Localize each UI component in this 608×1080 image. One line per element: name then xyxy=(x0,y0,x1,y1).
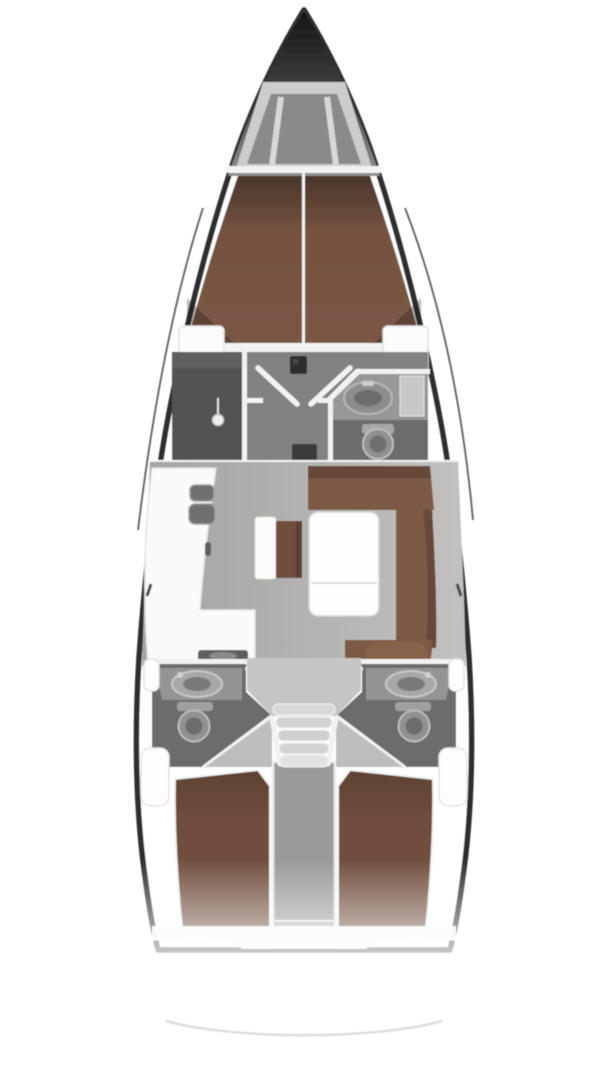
side-locker-starboard xyxy=(439,748,467,806)
yacht-floor-plan-page xyxy=(0,0,608,1080)
sink-icon xyxy=(172,671,222,697)
counter-handle xyxy=(205,542,211,556)
aft-head-stbd-topwall xyxy=(360,659,458,664)
side-locker-port-small xyxy=(144,659,159,691)
deck-centerline xyxy=(302,168,305,345)
yacht-interior-floor-plan xyxy=(0,0,608,1080)
center-bench-white xyxy=(255,517,276,579)
galley-sink-icon xyxy=(189,485,215,524)
side-locker-stbd-small xyxy=(449,659,464,691)
shower-shelf xyxy=(172,352,242,368)
mast-step-highlight xyxy=(293,359,298,364)
side-locker-port xyxy=(141,748,169,806)
head-top-wall xyxy=(356,369,430,374)
settee-top-backrest xyxy=(308,466,431,478)
hull-window-port xyxy=(176,286,187,328)
forward-head xyxy=(328,369,430,464)
shower-floor xyxy=(172,352,242,464)
shower-partition xyxy=(242,352,247,464)
stern-fade xyxy=(88,858,520,1080)
sink-icon xyxy=(386,671,436,697)
sink-icon xyxy=(344,381,392,414)
mast-step xyxy=(290,356,307,374)
head-cabinet xyxy=(400,376,424,416)
head-side-wall xyxy=(328,396,333,464)
aft-head-port-topwall xyxy=(150,659,248,664)
hull-window-starboard xyxy=(421,286,432,328)
salon xyxy=(142,462,466,668)
steps-icon xyxy=(273,704,335,767)
shower-room xyxy=(172,352,247,464)
center-bench-edge xyxy=(296,521,302,578)
saloon-table xyxy=(309,512,379,616)
toilet-icon xyxy=(362,424,394,459)
door-wall-port xyxy=(247,398,263,403)
